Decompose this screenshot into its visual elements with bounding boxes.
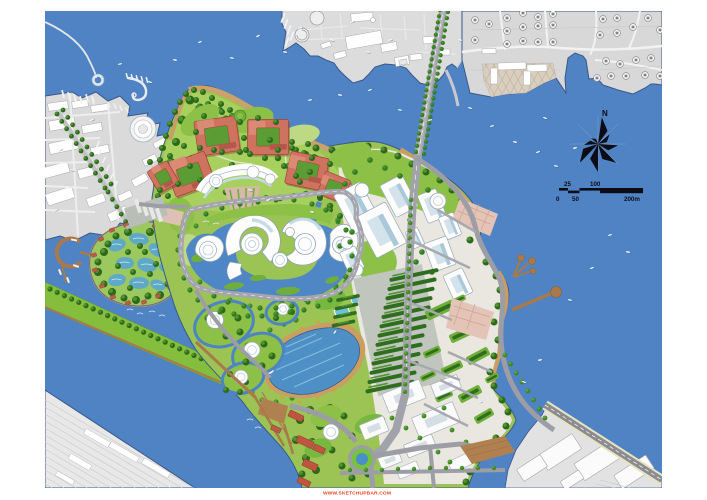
svg-text:0: 0 [556, 196, 560, 203]
svg-text:200m: 200m [624, 196, 640, 203]
svg-text:N: N [602, 109, 608, 118]
svg-text:WWW.SKETCHUPBAR.COM: WWW.SKETCHUPBAR.COM [323, 491, 391, 497]
svg-text:50: 50 [572, 196, 579, 203]
svg-text:100: 100 [590, 181, 601, 188]
svg-text:25: 25 [564, 181, 571, 188]
